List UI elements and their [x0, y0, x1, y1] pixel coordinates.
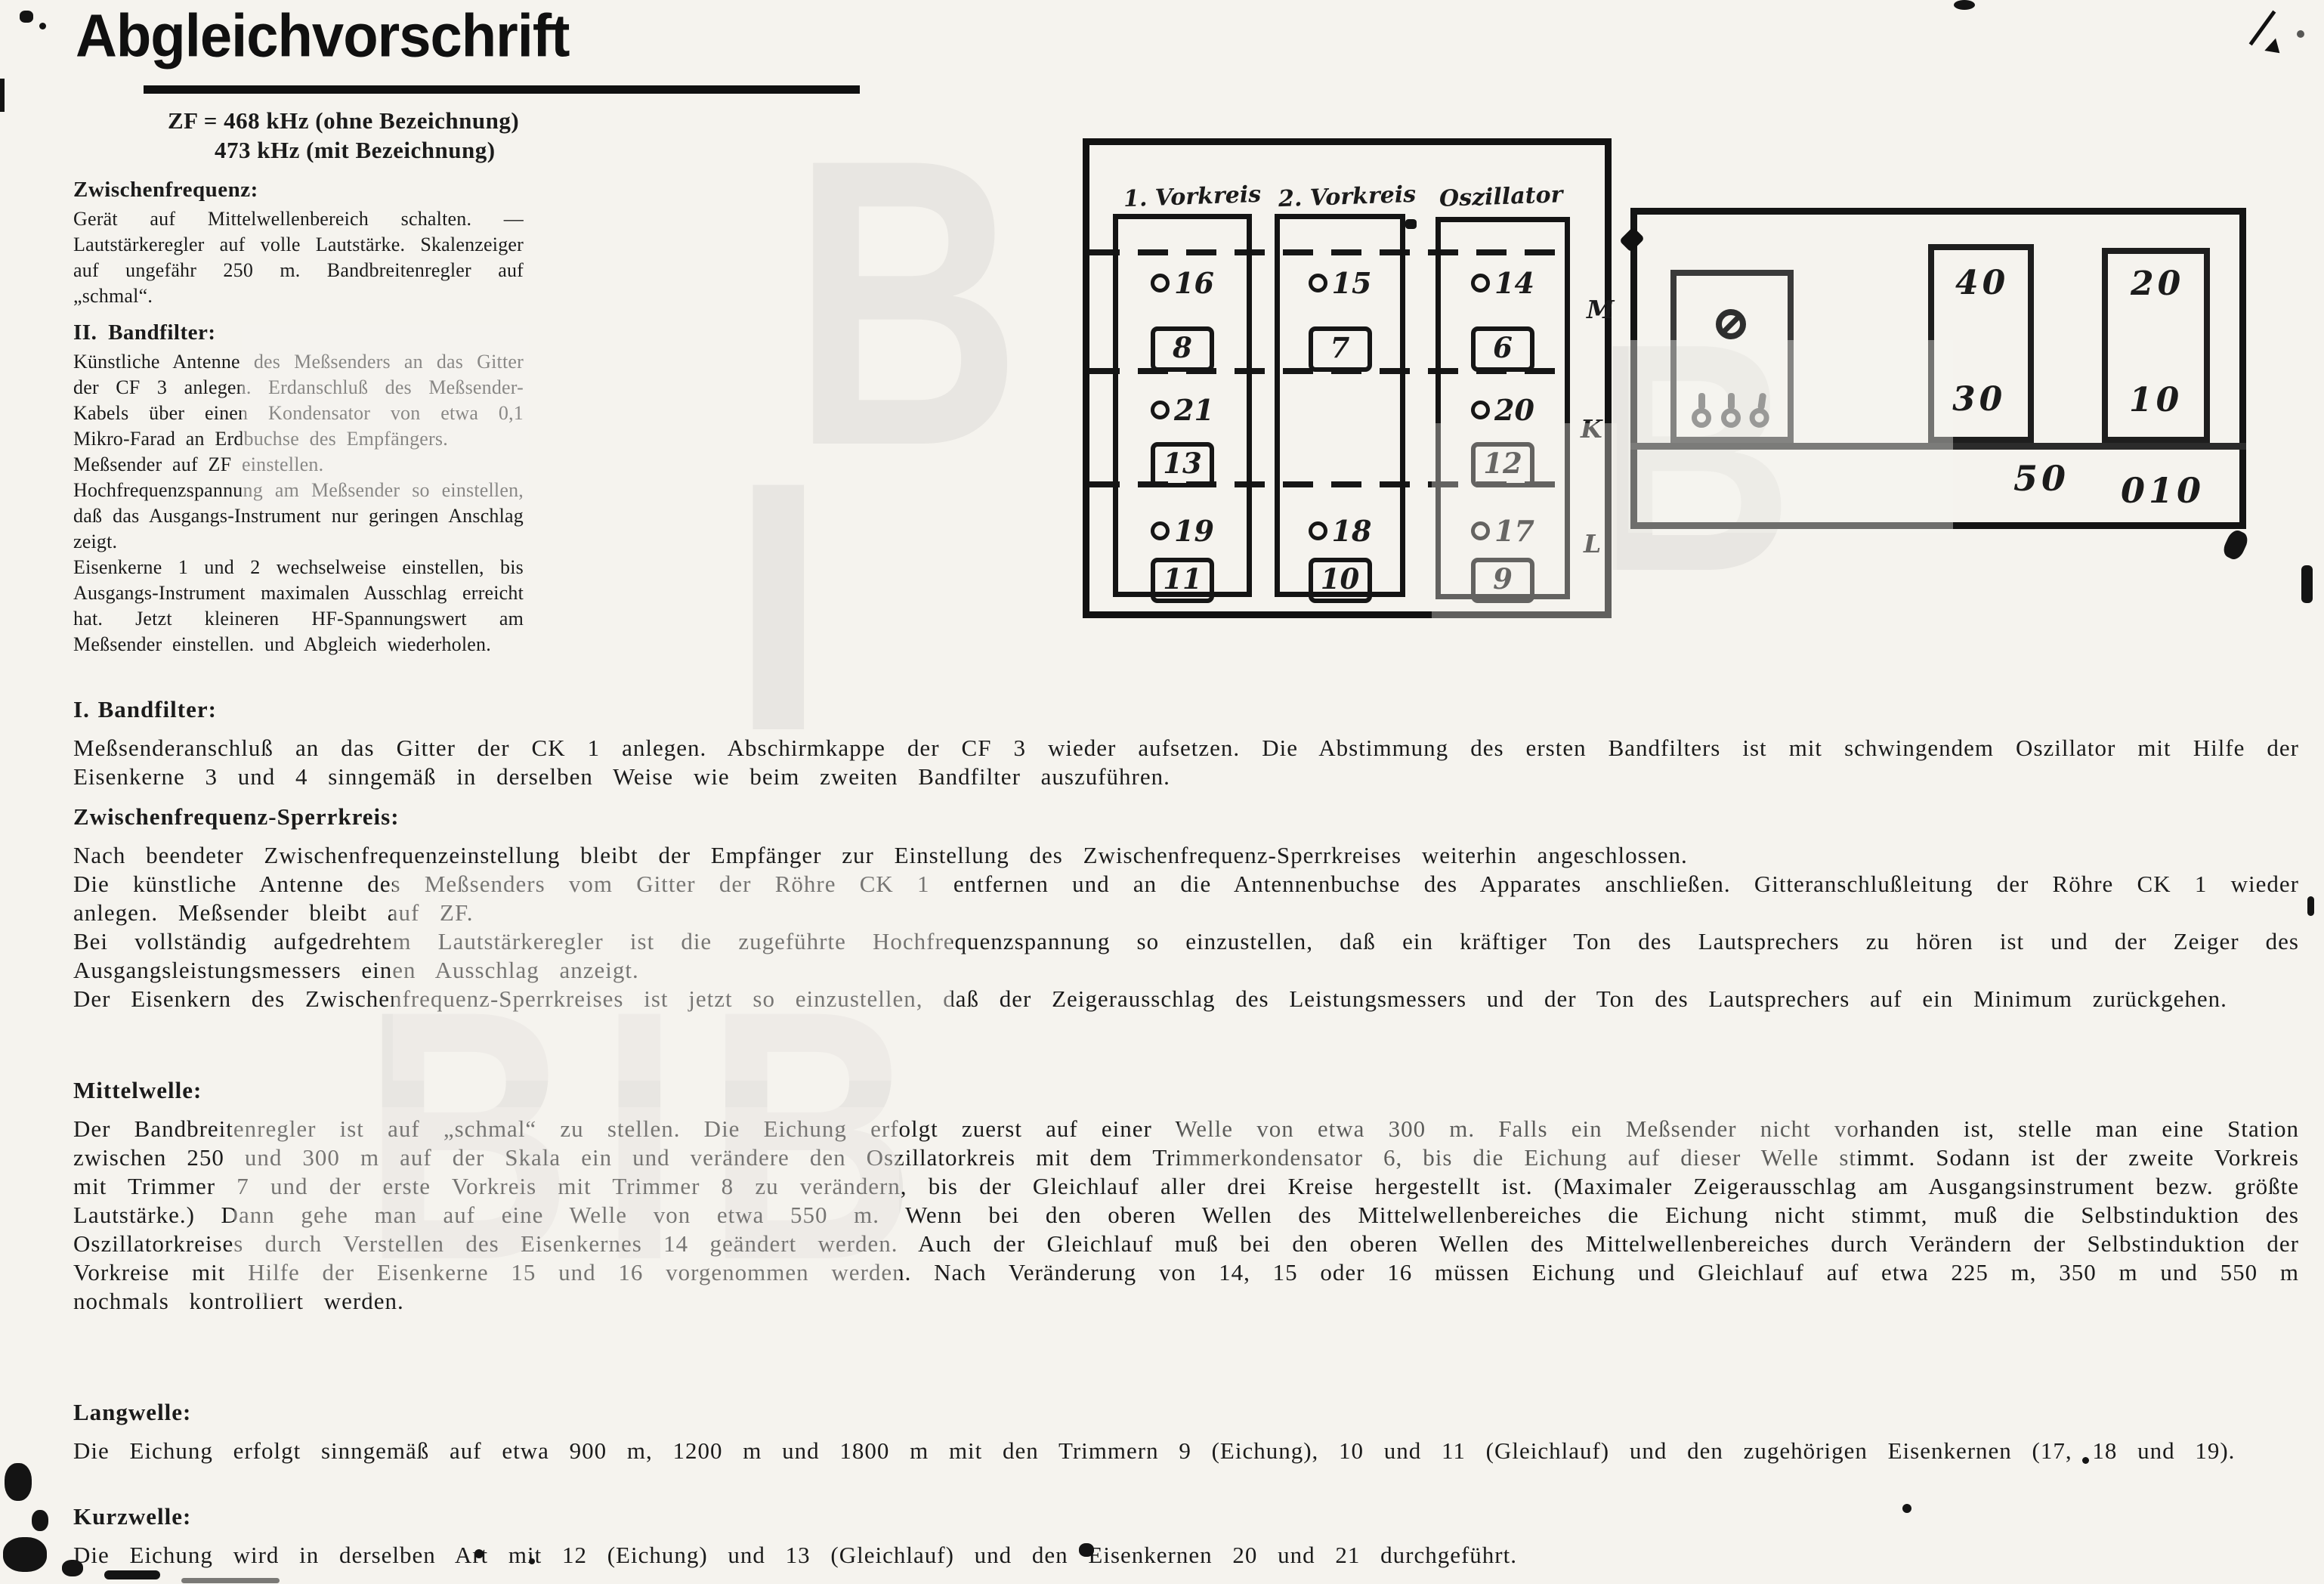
iron-core-19: 19 — [1118, 514, 1247, 548]
iron-core-number: 21 — [1174, 393, 1214, 427]
ink-blob-diamond — [1619, 227, 1645, 252]
paragraph-sperrkreis-4: Der Eisenkern des Zwischenfrequenz-Sperr… — [73, 985, 2299, 1013]
paragraph-bandfilter2-4: Eisenkerne 1 und 2 wechselweise einstell… — [73, 555, 524, 657]
heading-sperrkreis: Zwischenfrequenz-Sperrkreis: — [73, 803, 2299, 831]
ink-speck — [2220, 527, 2251, 562]
iron-core-17: 17 — [1441, 514, 1565, 548]
ink-speck — [39, 23, 46, 29]
paragraph-bandfilter2-3: Hochfrequenzspannung am Meßsender so ein… — [73, 478, 524, 555]
chassis-right-block: 20 10 — [2102, 248, 2210, 443]
ink-speck — [1405, 219, 1417, 229]
paragraph-kurzwelle: Die Eichung wird in derselben Art mit 12… — [73, 1541, 2299, 1570]
trimmer-6: 6 — [1441, 326, 1565, 372]
chassis-left-block — [1670, 270, 1794, 443]
iron-core-ring-icon — [1151, 521, 1170, 540]
trimmer-10: 10 — [1280, 558, 1400, 603]
scanned-document-page: B I B BIB Abgleichvorschrift ZF = 468 kH… — [0, 0, 2324, 1584]
column-vorkreis-2: 15 7 18 10 — [1275, 214, 1405, 597]
position-label-010: 010 — [2121, 470, 2205, 511]
ink-speck — [20, 11, 33, 23]
pen-stroke-artifact — [2249, 11, 2276, 46]
paragraph-sperrkreis-3: Bei vollständig aufgedrehtem Lautstärker… — [73, 927, 2299, 985]
paragraph-bandfilter2-2: Meßsender auf ZF einstellen. — [73, 452, 524, 478]
trimmer-number: 8 — [1151, 326, 1214, 372]
paragraph-zwischenfrequenz: Gerät auf Mittelwellenbereich schalten. … — [73, 206, 524, 309]
trimmer-9: 9 — [1441, 558, 1565, 603]
iron-core-15: 15 — [1280, 266, 1400, 300]
diagram-chassis-view: 40 30 20 10 50 010 — [1630, 208, 2246, 529]
trimmer-12: 12 — [1441, 442, 1565, 487]
band-label-l: L — [1584, 529, 1601, 558]
paragraph-langwelle: Die Eichung erfolgt sinngemäß auf etwa 9… — [73, 1437, 2299, 1465]
chassis-divider-line — [1630, 443, 2246, 450]
ink-speck — [2297, 30, 2304, 38]
ink-speck — [3, 1537, 47, 1572]
position-label-50: 50 — [2013, 458, 2069, 499]
solder-lug-icon — [1721, 393, 1741, 428]
iron-core-20: 20 — [1441, 393, 1565, 427]
iron-core-ring-icon — [1309, 274, 1327, 292]
ink-smudge — [181, 1578, 280, 1583]
heading-bandfilter-1: I. Bandfilter: — [73, 695, 2299, 724]
iron-core-ring-icon — [1471, 521, 1490, 540]
paragraph-bandfilter2-1: Künstliche Antenne des Meßsenders an das… — [73, 349, 524, 452]
iron-core-number: 19 — [1174, 514, 1214, 548]
iron-core-18: 18 — [1280, 514, 1400, 548]
band-label-k: K — [1581, 414, 1602, 444]
position-label-30: 30 — [1952, 380, 2006, 419]
zf-line-1: ZF = 468 kHz (ohne Bezeichnung) — [168, 106, 519, 135]
title-underline — [144, 85, 860, 94]
ink-speck — [529, 1558, 535, 1564]
iron-core-number: 16 — [1174, 266, 1214, 300]
trimmer-number: 12 — [1471, 442, 1534, 487]
trimmer-number: 9 — [1471, 558, 1534, 603]
section-mittelwelle: Mittelwelle: Der Bandbreitenregler ist a… — [73, 1076, 2299, 1316]
iron-core-ring-icon — [1309, 521, 1327, 540]
ink-speck — [1079, 1543, 1094, 1557]
trimmer-number: 6 — [1471, 326, 1534, 372]
iron-core-21: 21 — [1118, 393, 1247, 427]
iron-core-ring-icon — [1471, 274, 1490, 292]
iron-core-number: 20 — [1494, 393, 1534, 427]
position-label-40: 40 — [1955, 264, 2009, 302]
trimmer-13: 13 — [1118, 442, 1247, 487]
ink-speck — [104, 1570, 160, 1579]
paragraph-sperrkreis-1: Nach beendeter Zwischenfrequenzeinstellu… — [73, 841, 2299, 870]
ink-speck — [32, 1510, 48, 1531]
left-column: Zwischenfrequenz: Gerät auf Mittelwellen… — [73, 177, 524, 657]
trimmer-number: 13 — [1151, 442, 1214, 487]
iron-core-number: 14 — [1494, 266, 1534, 300]
band-label-m: M — [1587, 295, 1615, 324]
ink-speck — [2301, 565, 2313, 603]
column-oszillator: 14 6 20 12 17 9 — [1436, 217, 1570, 599]
heading-kurzwelle: Kurzwelle: — [73, 1502, 2299, 1531]
iron-core-number: 15 — [1332, 266, 1372, 300]
iron-core-ring-icon — [1471, 401, 1490, 419]
iron-core-number: 18 — [1332, 514, 1372, 548]
zf-note: ZF = 468 kHz (ohne Bezeichnung) 473 kHz … — [168, 106, 519, 165]
ink-speck — [0, 79, 5, 112]
ink-speck — [1954, 0, 1975, 10]
heading-bandfilter-2: II. Bandfilter: — [73, 320, 524, 345]
ink-speck — [474, 1549, 484, 1558]
section-sperrkreis: Zwischenfrequenz-Sperrkreis: Nach beende… — [73, 803, 2299, 1013]
section-bandfilter-1: I. Bandfilter: Meßsenderanschluß an das … — [73, 695, 2299, 791]
ink-speck — [2082, 1457, 2089, 1464]
iron-core-number: 17 — [1494, 514, 1534, 548]
iron-core-16: 16 — [1118, 266, 1247, 300]
heading-mittelwelle: Mittelwelle: — [73, 1076, 2299, 1105]
solder-lug-row — [1692, 393, 1777, 432]
trimmer-number: 11 — [1151, 558, 1214, 603]
iron-core-ring-icon — [1151, 401, 1170, 419]
solder-lug-icon — [1692, 393, 1712, 428]
paragraph-sperrkreis-2: Die künstliche Antenne des Meßsenders vo… — [73, 870, 2299, 927]
column-header-vorkreis-1: 1. Vorkreis — [1123, 181, 1261, 212]
diagram-if-adjustment: 1. Vorkreis 2. Vorkreis Oszillator 16 8 … — [1083, 138, 1612, 618]
position-label-20: 20 — [2131, 265, 2184, 303]
column-header-vorkreis-2: 2. Vorkreis — [1278, 181, 1416, 212]
pen-arrow-artifact — [2264, 39, 2285, 60]
column-header-oszillator: Oszillator — [1439, 181, 1562, 212]
position-label-10: 10 — [2129, 381, 2183, 419]
trimmer-8: 8 — [1118, 326, 1247, 372]
trimmer-number: 7 — [1309, 326, 1372, 372]
solder-lug-icon — [1748, 391, 1773, 428]
page-title: Abgleichvorschrift — [76, 2, 569, 70]
chassis-mid-block: 40 30 — [1928, 244, 2034, 443]
paragraph-bandfilter1: Meßsenderanschluß an das Gitter der CK 1… — [73, 734, 2299, 791]
iron-core-ring-icon — [1151, 274, 1170, 292]
iron-core-14: 14 — [1441, 266, 1565, 300]
zf-line-2: 473 kHz (mit Bezeichnung) — [168, 135, 519, 165]
trimmer-7: 7 — [1280, 326, 1400, 372]
ink-speck — [1902, 1504, 1911, 1513]
column-vorkreis-1: 16 8 21 13 19 11 — [1113, 214, 1252, 597]
section-kurzwelle: Kurzwelle: Die Eichung wird in derselben… — [73, 1502, 2299, 1570]
trimmer-number: 10 — [1309, 558, 1372, 603]
trimmer-11: 11 — [1118, 558, 1247, 603]
section-langwelle: Langwelle: Die Eichung erfolgt sinngemäß… — [73, 1398, 2299, 1465]
slotted-screw-icon — [1716, 309, 1746, 339]
ink-speck — [5, 1463, 32, 1501]
ink-speck — [62, 1560, 83, 1576]
heading-zwischenfrequenz: Zwischenfrequenz: — [73, 177, 524, 203]
paragraph-mittelwelle: Der Bandbreitenregler ist auf „schmal“ z… — [73, 1115, 2299, 1316]
ink-speck — [2307, 896, 2314, 916]
heading-langwelle: Langwelle: — [73, 1398, 2299, 1427]
